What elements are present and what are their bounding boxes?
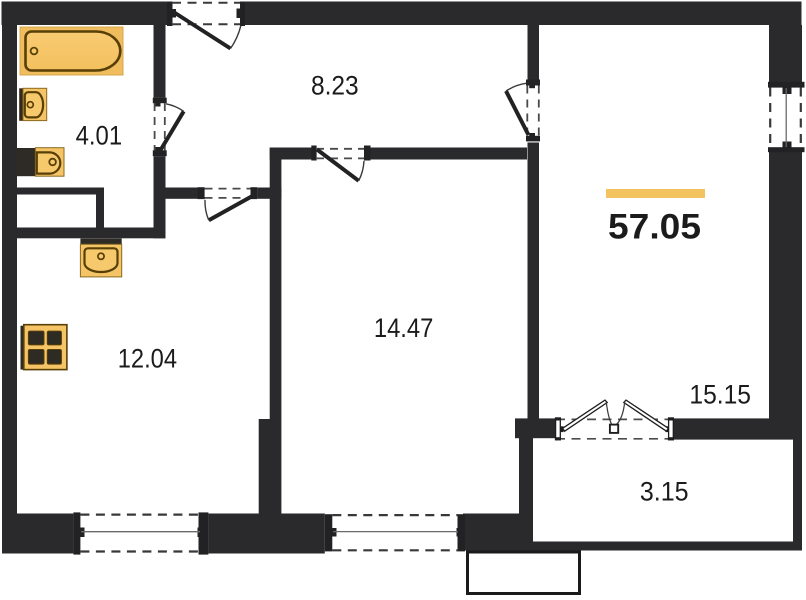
svg-text:8.23: 8.23 [311,71,359,101]
svg-text:4.01: 4.01 [76,121,123,151]
svg-text:15.15: 15.15 [689,380,751,410]
svg-text:57.05: 57.05 [608,207,701,246]
svg-text:12.04: 12.04 [118,344,177,374]
svg-text:14.47: 14.47 [374,313,434,343]
svg-text:3.15: 3.15 [640,477,689,507]
